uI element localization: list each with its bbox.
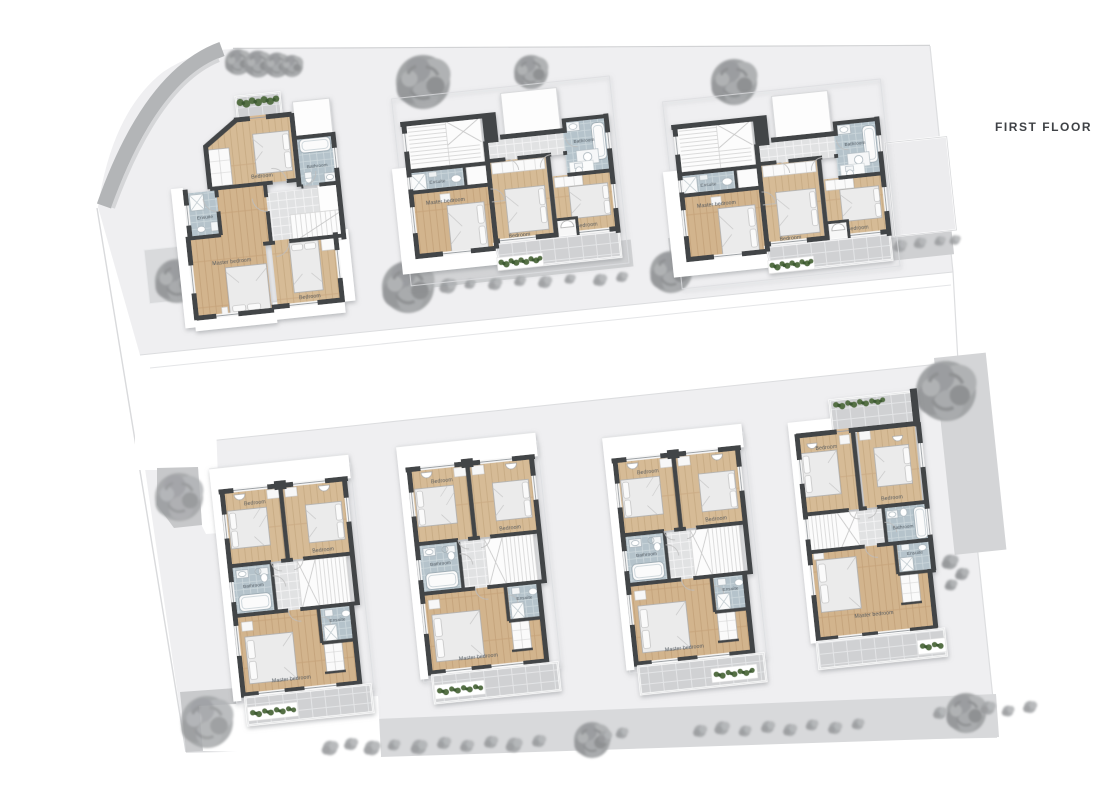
svg-text:FIRST FLOOR: FIRST FLOOR (995, 120, 1092, 134)
